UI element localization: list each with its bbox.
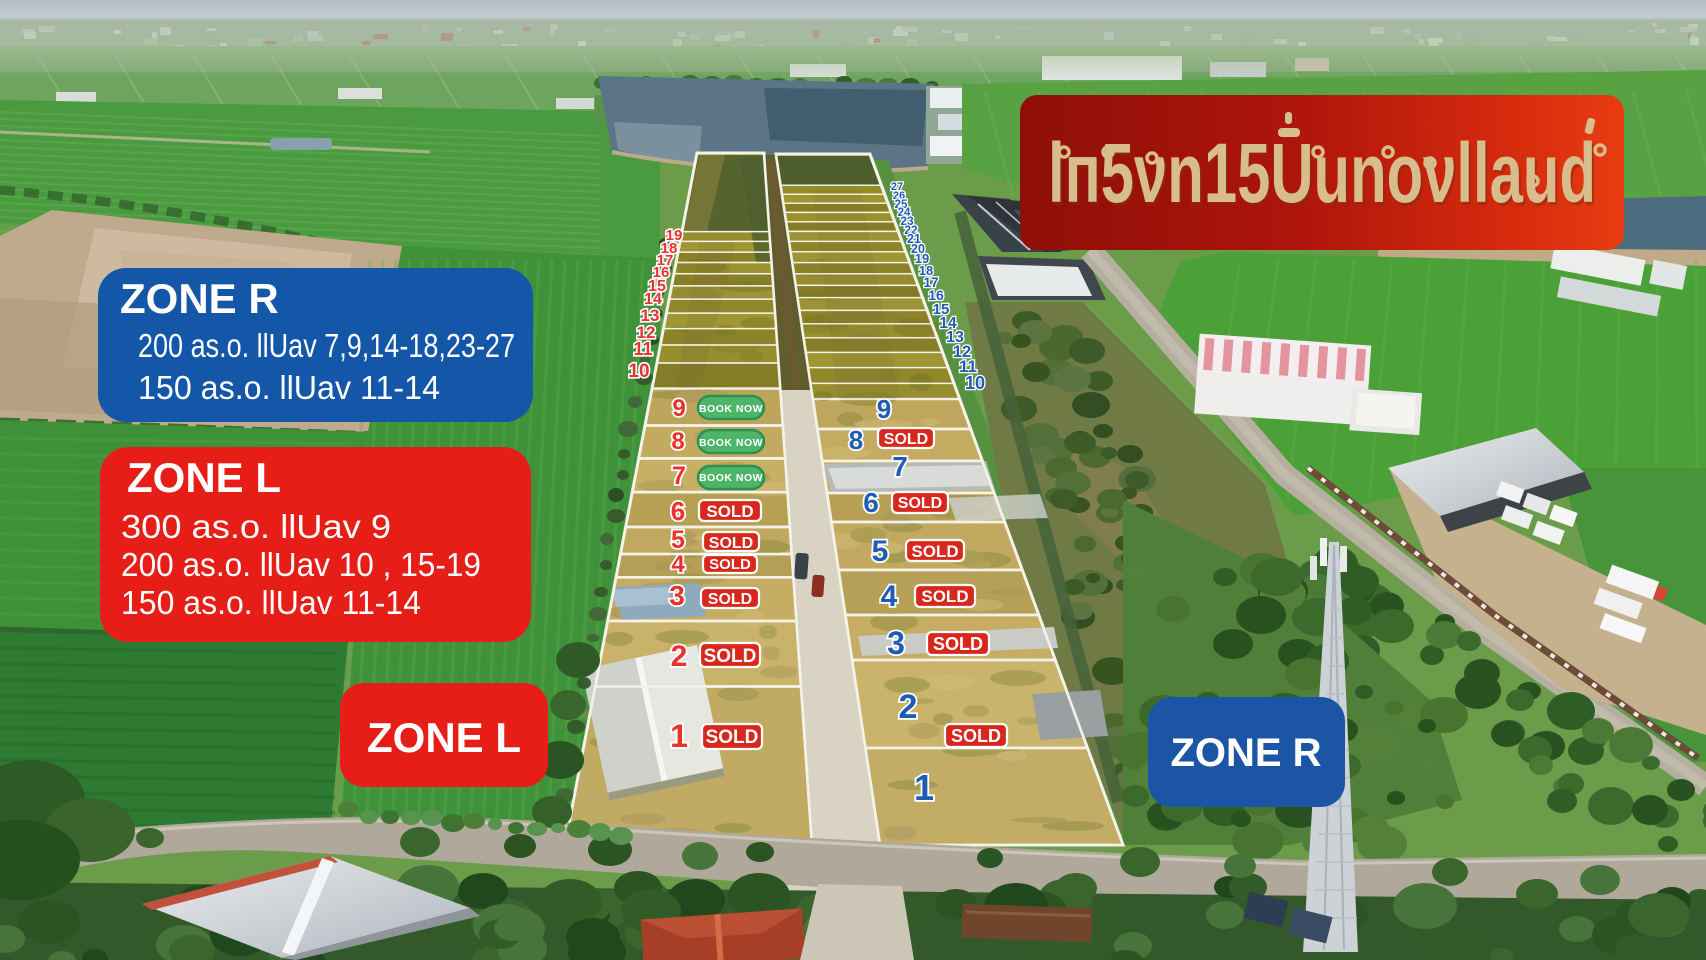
svg-text:SOLD: SOLD (709, 556, 751, 573)
svg-text:9: 9 (877, 394, 891, 424)
svg-text:SOLD: SOLD (708, 591, 752, 608)
svg-text:1: 1 (914, 767, 934, 808)
svg-text:SOLD: SOLD (951, 726, 1001, 746)
svg-text:2: 2 (671, 640, 688, 673)
svg-text:SOLD: SOLD (706, 502, 753, 521)
svg-text:SOLD: SOLD (706, 727, 759, 748)
svg-text:6: 6 (863, 487, 879, 518)
svg-text:SOLD: SOLD (921, 587, 968, 606)
svg-text:ZONE R: ZONE R (1170, 731, 1321, 775)
svg-text:300 as.o. llUav 9: 300 as.o. llUav 9 (121, 508, 391, 545)
svg-text:150 as.o. llUav 11-14: 150 as.o. llUav 11-14 (138, 369, 440, 406)
svg-text:5: 5 (872, 535, 889, 568)
svg-text:BOOK NOW: BOOK NOW (699, 472, 763, 484)
svg-text:SOLD: SOLD (884, 431, 928, 448)
svg-text:4: 4 (671, 551, 685, 578)
svg-text:SOLD: SOLD (898, 495, 942, 512)
svg-text:BOOK NOW: BOOK NOW (699, 437, 763, 449)
svg-text:ZONE L: ZONE L (367, 714, 521, 761)
svg-text:SOLD: SOLD (704, 646, 757, 667)
svg-text:8: 8 (671, 428, 684, 455)
svg-text:200 as.o. llUav 7,9,14-18,23-2: 200 as.o. llUav 7,9,14-18,23-27 (138, 327, 515, 364)
svg-text:ZONE L: ZONE L (127, 454, 281, 501)
svg-text:3: 3 (887, 625, 905, 661)
svg-text:8: 8 (849, 425, 863, 455)
svg-text:10: 10 (965, 373, 985, 393)
svg-text:200 as.o. llUav 10 , 15-19: 200 as.o. llUav 10 , 15-19 (121, 546, 481, 583)
svg-text:ZONE R: ZONE R (120, 275, 279, 322)
svg-text:5: 5 (671, 526, 685, 554)
svg-text:SOLD: SOLD (911, 542, 958, 561)
svg-text:6: 6 (671, 496, 685, 526)
svg-text:3: 3 (669, 580, 685, 611)
svg-text:150 as.o. llUav 11-14: 150 as.o. llUav 11-14 (121, 584, 421, 621)
svg-text:7: 7 (672, 462, 686, 490)
svg-text:1: 1 (670, 718, 688, 754)
svg-text:4: 4 (881, 580, 898, 613)
svg-text:lп5νn15Uunoνllaud: lп5νn15Uunoνllaud (1048, 126, 1596, 220)
svg-text:11: 11 (633, 339, 652, 359)
svg-text:9: 9 (672, 395, 685, 422)
svg-text:SOLD: SOLD (933, 634, 983, 654)
svg-text:SOLD: SOLD (709, 535, 753, 552)
svg-text:10: 10 (628, 361, 649, 382)
svg-text:2: 2 (899, 688, 918, 726)
svg-text:BOOK NOW: BOOK NOW (699, 403, 763, 415)
svg-text:7: 7 (892, 451, 908, 482)
